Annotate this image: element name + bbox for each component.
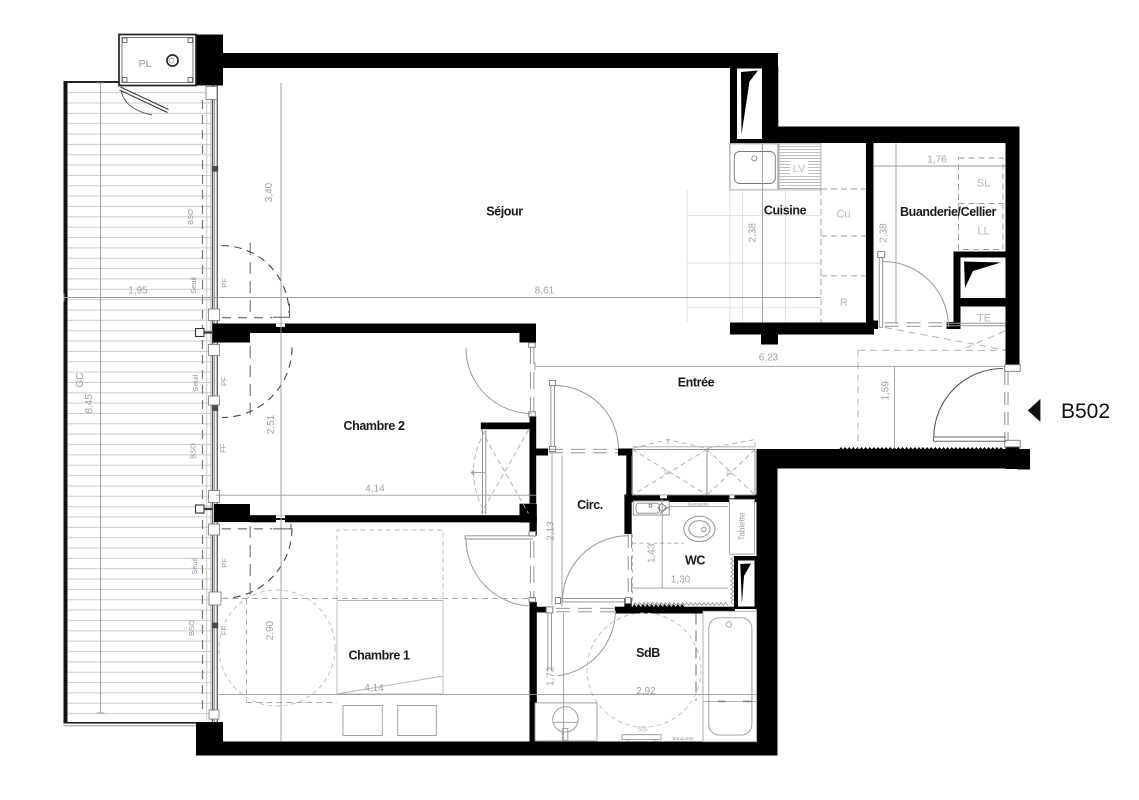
- svg-text:2,13: 2,13: [546, 521, 557, 541]
- svg-text:Circ.: Circ.: [577, 498, 603, 512]
- svg-text:LL: LL: [977, 226, 989, 238]
- svg-text:8,61: 8,61: [535, 286, 555, 297]
- svg-text:1,43: 1,43: [647, 543, 658, 563]
- svg-text:R: R: [840, 297, 848, 309]
- svg-text:SdB: SdB: [636, 646, 660, 660]
- svg-text:Entrée: Entrée: [678, 376, 715, 390]
- svg-text:6,23: 6,23: [759, 353, 779, 364]
- svg-text:Seuil: Seuil: [190, 558, 199, 575]
- svg-text:Séjour: Séjour: [486, 205, 523, 219]
- svg-text:Pl: Pl: [664, 470, 670, 477]
- svg-text:4,14: 4,14: [365, 484, 385, 495]
- svg-text:3,40: 3,40: [264, 182, 275, 202]
- svg-text:Cuisine: Cuisine: [764, 204, 807, 218]
- svg-text:2,90: 2,90: [265, 620, 276, 640]
- svg-text:1,76: 1,76: [927, 155, 947, 166]
- svg-text:2,38: 2,38: [879, 223, 890, 243]
- svg-text:SL: SL: [977, 178, 990, 190]
- svg-text:B502: B502: [1061, 400, 1110, 423]
- svg-text:WC: WC: [685, 554, 705, 568]
- svg-text:Buanderie/Cellier: Buanderie/Cellier: [900, 205, 997, 219]
- svg-text:Chambre 1: Chambre 1: [348, 649, 409, 663]
- svg-text:Tablette: Tablette: [738, 512, 747, 541]
- svg-text:8,45: 8,45: [84, 394, 95, 414]
- svg-text:Cu: Cu: [836, 209, 850, 221]
- svg-text:TE: TE: [977, 313, 991, 325]
- svg-text:1,95: 1,95: [128, 286, 148, 297]
- svg-text:2,92: 2,92: [636, 686, 656, 697]
- svg-text:PL: PL: [139, 58, 152, 70]
- svg-text:BSO: BSO: [187, 620, 196, 636]
- svg-text:BSO: BSO: [186, 209, 195, 225]
- svg-text:1,30: 1,30: [671, 575, 691, 586]
- svg-text:GC: GC: [75, 373, 86, 388]
- svg-text:1,72: 1,72: [546, 666, 557, 686]
- svg-text:FF: FF: [220, 626, 229, 636]
- svg-text:Chambre 2: Chambre 2: [343, 419, 404, 433]
- svg-text:2,38: 2,38: [748, 223, 759, 243]
- svg-text:SS: SS: [637, 725, 647, 734]
- svg-text:1,59: 1,59: [881, 381, 892, 401]
- svg-text:2,51: 2,51: [266, 414, 277, 434]
- svg-text:PF: PF: [220, 558, 229, 568]
- svg-text:Seuil: Seuil: [191, 374, 200, 391]
- svg-text:LV: LV: [793, 163, 806, 175]
- svg-text:Banquette: Banquette: [673, 736, 694, 741]
- svg-text:4,14: 4,14: [364, 683, 384, 694]
- svg-text:PF: PF: [219, 376, 228, 386]
- svg-text:PF: PF: [220, 278, 229, 288]
- svg-text:Banquette: Banquette: [688, 501, 709, 506]
- svg-text:FF: FF: [218, 443, 227, 453]
- svg-text:BSO: BSO: [189, 443, 198, 459]
- svg-text:Seuil: Seuil: [189, 277, 198, 294]
- svg-text:Pl: Pl: [726, 470, 732, 477]
